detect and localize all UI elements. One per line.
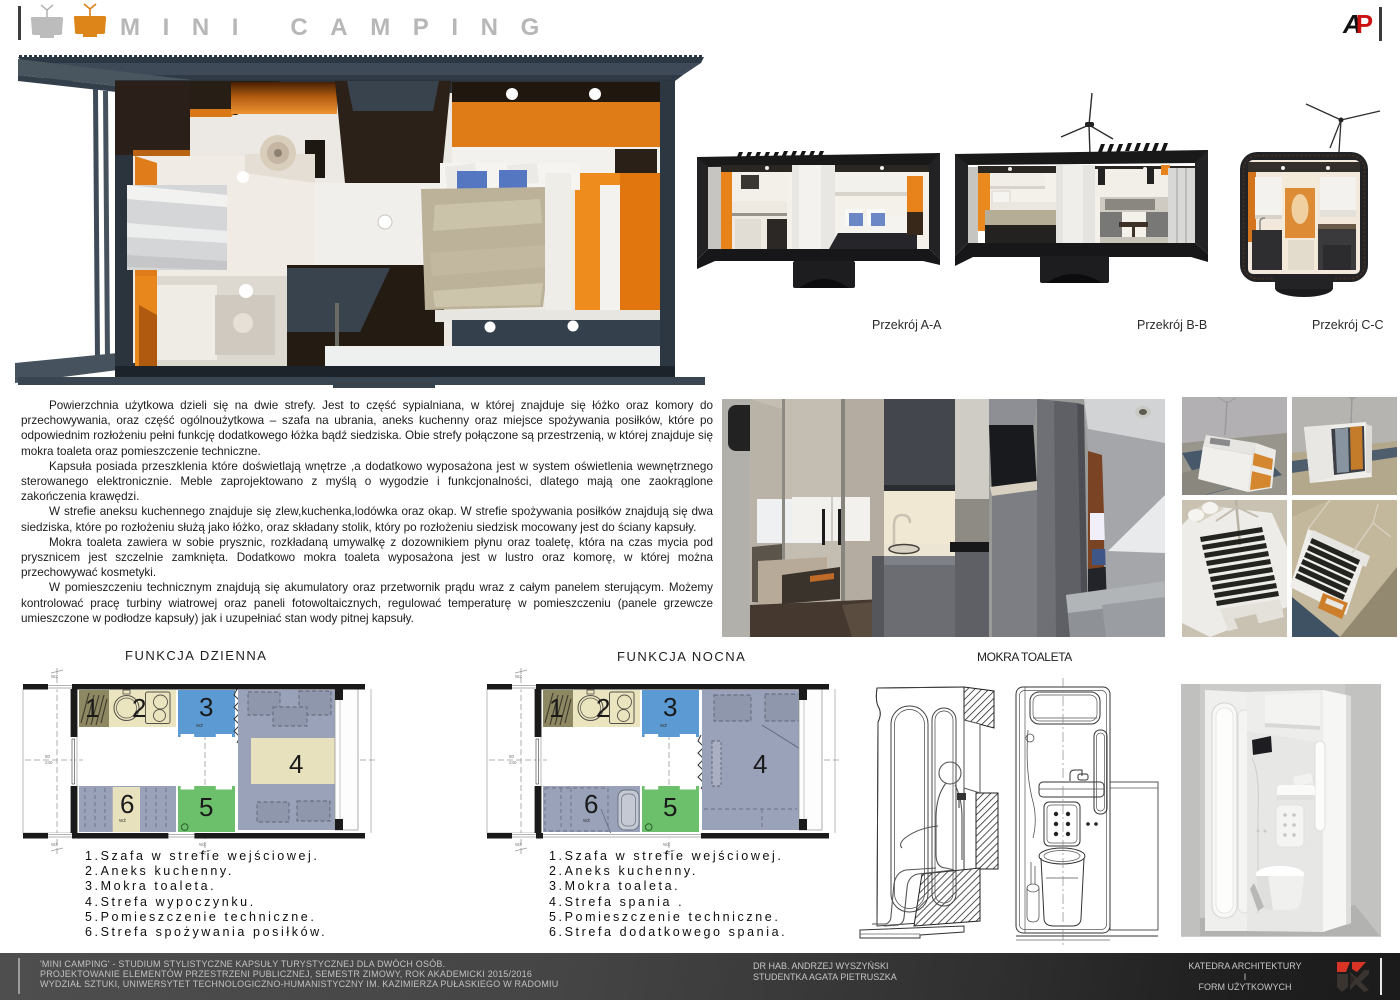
svg-text:3: 3 [199, 692, 213, 722]
svg-text:80: 80 [45, 754, 51, 759]
svg-text:WŻ: WŻ [199, 841, 206, 847]
svg-text:2: 2 [132, 693, 146, 723]
svg-text:WŻ: WŻ [51, 841, 58, 847]
svg-text:6: 6 [120, 789, 134, 819]
svg-text:6: 6 [584, 789, 598, 819]
svg-text:WŻ: WŻ [583, 817, 590, 823]
svg-text:1: 1 [549, 693, 563, 723]
svg-text:WŻ: WŻ [660, 722, 667, 728]
svg-text:WŻ: WŻ [515, 673, 522, 679]
svg-text:2: 2 [596, 693, 610, 723]
svg-text:WŻ: WŻ [663, 841, 670, 847]
svg-text:240: 240 [45, 760, 53, 765]
svg-text:WŻ: WŻ [51, 673, 58, 679]
svg-text:80: 80 [509, 754, 515, 759]
svg-text:1: 1 [85, 693, 99, 723]
svg-text:4: 4 [289, 749, 303, 779]
svg-text:WŻ: WŻ [515, 841, 522, 847]
svg-text:5: 5 [663, 792, 677, 822]
svg-text:5: 5 [199, 792, 213, 822]
svg-text:WŻ: WŻ [119, 817, 126, 823]
svg-text:3: 3 [663, 692, 677, 722]
svg-text:4: 4 [753, 749, 767, 779]
svg-text:240: 240 [509, 760, 517, 765]
svg-text:WŻ: WŻ [196, 722, 203, 728]
